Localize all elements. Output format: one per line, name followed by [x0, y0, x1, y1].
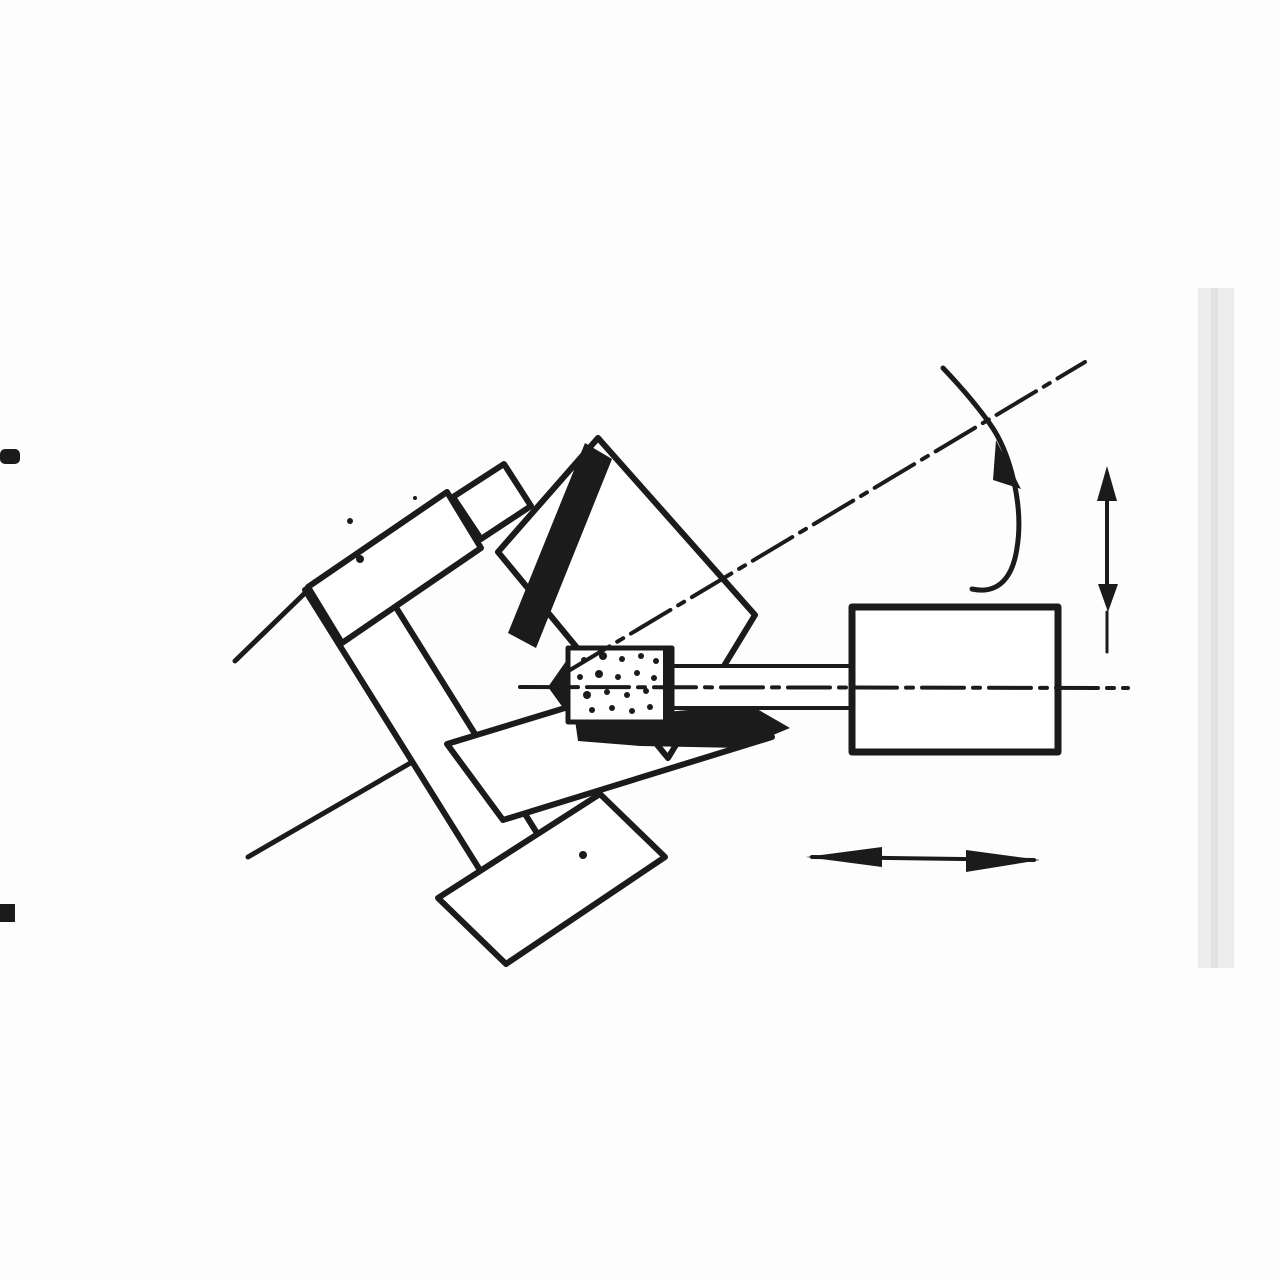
wheel-grit-dot — [604, 689, 610, 695]
wheel-grit-dot — [589, 707, 595, 713]
wheelhead-block — [852, 607, 1058, 752]
binding-mark-top — [0, 449, 20, 464]
wheel-grit-dot — [609, 705, 615, 711]
grinding-setup-figure — [0, 0, 1280, 1280]
wheel-grit-dot — [619, 656, 625, 662]
chuck-speckle-2 — [356, 555, 364, 563]
wheel-grit-dot — [647, 704, 653, 710]
chuck-speckle-1 — [347, 518, 353, 524]
page-edge-line — [1211, 288, 1218, 968]
wheel-grit-dot — [629, 708, 635, 714]
scanned-page — [0, 0, 1280, 1280]
wheel-grit-dot — [651, 675, 657, 681]
wheel-grit-dot — [615, 674, 621, 680]
traverse-arrow-head-left — [806, 847, 882, 867]
wheel-grit-dot — [634, 670, 640, 676]
chuck-speckle-3 — [413, 496, 417, 500]
wheel-grit-dot — [595, 670, 603, 678]
infeed-arrow-head-up — [1097, 466, 1117, 501]
chuck-speckle-4 — [579, 851, 587, 859]
rotation-arrow-head — [993, 440, 1021, 489]
wheel-grit-dot — [638, 653, 644, 659]
traverse-arrow-head-right — [966, 850, 1040, 872]
binding-mark-bottom — [0, 904, 15, 922]
wheel-grit-dot — [653, 658, 659, 664]
wheel-grit-dot — [577, 674, 583, 680]
wheel-grit-dot — [624, 692, 630, 698]
wheel-grit-dot — [583, 691, 591, 699]
infeed-arrow-head-down — [1098, 584, 1118, 612]
workhead-line-upper — [235, 592, 306, 661]
